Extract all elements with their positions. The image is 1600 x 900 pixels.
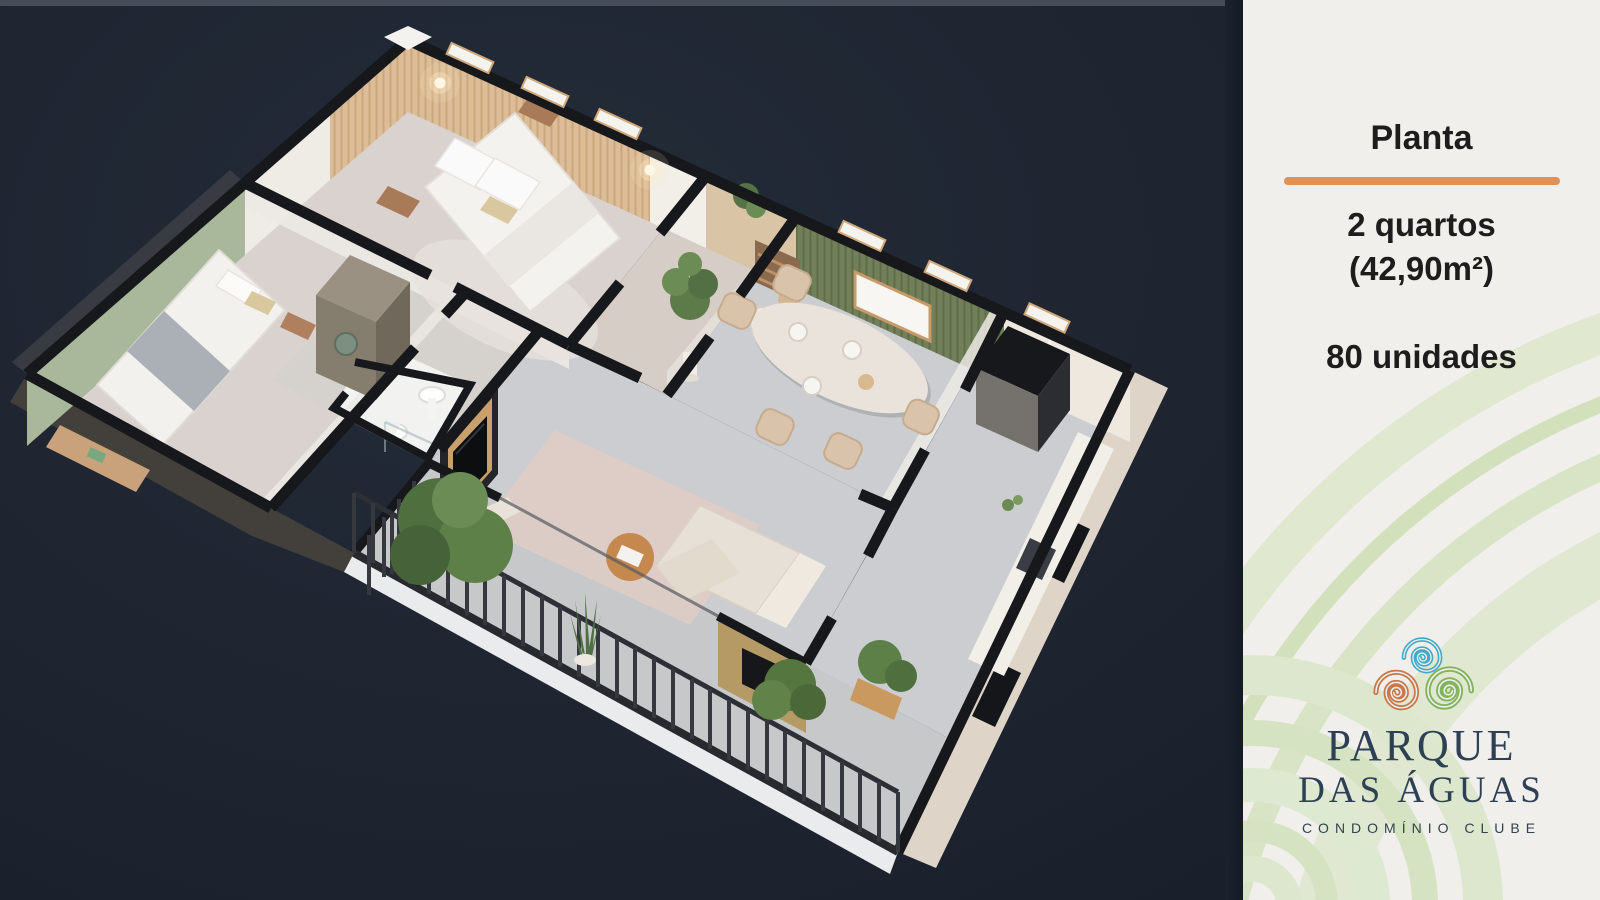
- round-mirror: [335, 333, 357, 355]
- panel-edge-shadow: [1225, 0, 1243, 900]
- swirl-orange: [1375, 672, 1416, 708]
- logo-tagline: CONDOMÍNIO CLUBE: [1302, 818, 1541, 838]
- orange-divider: [1284, 177, 1560, 185]
- brand-logo: PARQUE DAS ÁGUAS CONDOMÍNIO CLUBE: [1243, 630, 1600, 838]
- spec-bedrooms-area: 2 quartos (42,90m²): [1243, 203, 1600, 291]
- swirl-green: [1427, 669, 1470, 707]
- swirl-blue: [1403, 639, 1439, 671]
- spec-bedrooms: 2 quartos: [1243, 203, 1600, 247]
- top-edge-highlight: [0, 0, 1243, 6]
- panel-title: Planta: [1243, 119, 1600, 158]
- spec-area: (42,90m²): [1243, 247, 1600, 291]
- logo-name-line1: PARQUE: [1327, 722, 1517, 770]
- logo-swirls-icon: [1342, 630, 1502, 722]
- info-panel: Planta 2 quartos (42,90m²) 80 unidades: [1243, 0, 1600, 900]
- marketing-slide: Planta 2 quartos (42,90m²) 80 unidades: [0, 0, 1600, 900]
- spec-units: 80 unidades: [1243, 335, 1600, 379]
- logo-name-line2: DAS ÁGUAS: [1298, 770, 1545, 812]
